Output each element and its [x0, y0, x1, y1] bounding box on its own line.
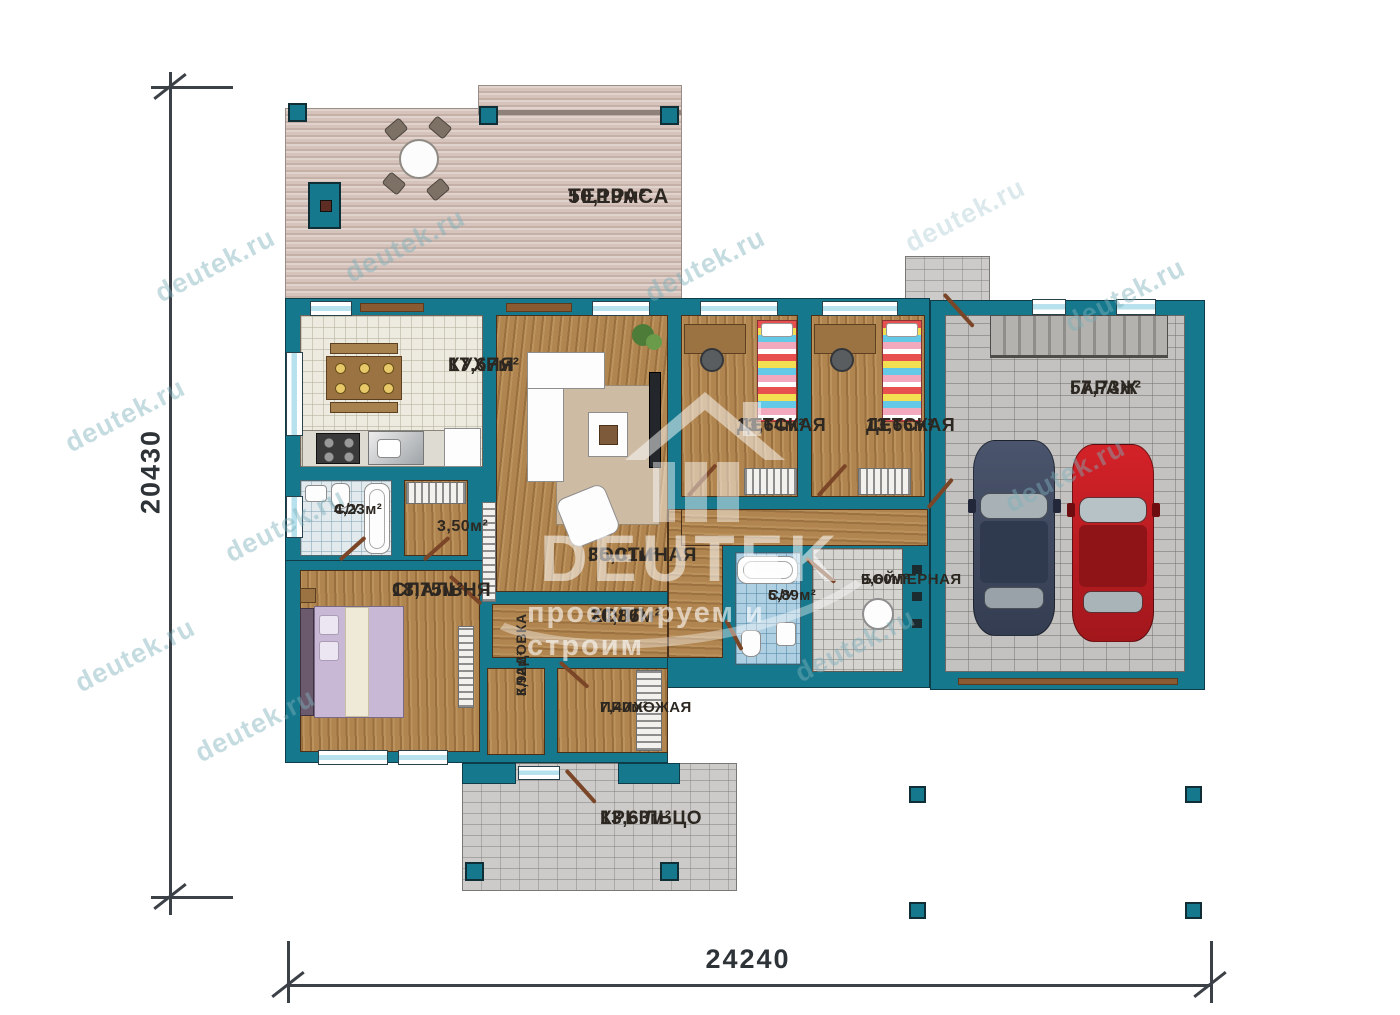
kitchen-bench	[330, 402, 398, 413]
car-roof	[1079, 525, 1147, 587]
child2-chair	[830, 348, 854, 372]
child1-bed	[757, 320, 797, 422]
kitchen-dining-table	[326, 356, 402, 400]
bed-throw	[345, 607, 369, 717]
child2-bed	[882, 320, 922, 422]
terrace-pillar	[288, 103, 307, 122]
plate	[359, 363, 370, 374]
carport-post	[1185, 786, 1202, 803]
pillow	[319, 615, 339, 635]
terrace-door-threshold	[360, 303, 424, 312]
porch-pillar	[660, 862, 679, 881]
bedroom-wardrobe	[458, 626, 474, 708]
bedroom-window	[398, 750, 448, 765]
dimension-label-height: 20430	[136, 417, 167, 527]
kitchen-sink	[368, 431, 424, 465]
plate	[383, 383, 394, 394]
porch-pillar	[465, 862, 484, 881]
watermark-text: deutek.ru	[900, 172, 1030, 259]
hall-corridor-floor	[681, 509, 928, 546]
tub-inner	[743, 561, 793, 579]
carport-post	[1185, 902, 1202, 919]
car-mirror	[968, 499, 976, 513]
closet-shelves	[406, 482, 466, 504]
carport-post	[909, 786, 926, 803]
sink-basin	[377, 439, 401, 458]
bedroom-nightstand	[300, 588, 316, 603]
tub-inner	[369, 489, 385, 549]
porch-wall-stub	[618, 763, 680, 784]
car-mirror	[1152, 503, 1160, 517]
kitchen-fridge	[444, 428, 481, 467]
terrace-table	[399, 139, 439, 179]
floor-plan: deutek.ru deutek.ru deutek.ru deutek.ru …	[0, 0, 1400, 1015]
car-mirror	[1067, 503, 1075, 517]
car-roof	[980, 521, 1048, 583]
living-plant	[646, 334, 662, 350]
kitchen-window	[286, 352, 303, 436]
living-window	[592, 301, 650, 316]
bed-mattress	[314, 606, 404, 718]
kitchen-bench	[330, 343, 398, 354]
carport-post	[909, 902, 926, 919]
pillow	[319, 641, 339, 661]
car-rear-window	[1083, 591, 1143, 613]
terrace-deck-step	[478, 85, 682, 115]
dimension-label-width: 24240	[648, 944, 848, 975]
coffee-table-tray	[599, 425, 618, 445]
bedroom-window	[318, 750, 388, 765]
porch-window	[518, 766, 560, 780]
plate	[359, 383, 370, 394]
bath2-tub	[737, 556, 798, 584]
child2-wardrobe	[858, 468, 911, 495]
terrace-deck	[285, 108, 682, 312]
garage-gate-threshold	[958, 678, 1178, 685]
porch-wall-stub	[462, 763, 516, 784]
terrace-bbq-pillar	[308, 182, 341, 229]
living-tv	[649, 372, 661, 468]
kitchen-top-window	[310, 301, 352, 316]
kitchen-stove	[316, 433, 360, 464]
pillow	[761, 323, 793, 337]
terrace-pillar	[660, 106, 679, 125]
child2-window	[822, 301, 898, 316]
boiler-panel	[912, 592, 922, 601]
plate	[383, 363, 394, 374]
terrace-pillar	[479, 106, 498, 125]
child1-window	[700, 301, 778, 316]
bath2-sink	[776, 622, 796, 646]
plate	[335, 363, 346, 374]
pillow	[886, 323, 918, 337]
plate	[335, 383, 346, 394]
child1-wardrobe	[744, 468, 797, 495]
living-coffee-table	[588, 412, 628, 457]
dimension-line-height	[169, 72, 172, 915]
dim-tick	[1210, 941, 1213, 1003]
car-mirror	[1053, 499, 1061, 513]
child1-chair	[700, 348, 724, 372]
bath2-toilet	[741, 630, 761, 657]
living-terrace-threshold	[506, 303, 572, 312]
dim-tick	[287, 941, 290, 1003]
watermark-text: deutek.ru	[70, 612, 200, 699]
car-rear-window	[984, 587, 1044, 609]
living-sofa-corner	[527, 352, 605, 389]
terrace-bbq-grate	[320, 200, 332, 212]
dimension-line-width	[288, 984, 1212, 987]
car-windshield	[1079, 497, 1147, 523]
